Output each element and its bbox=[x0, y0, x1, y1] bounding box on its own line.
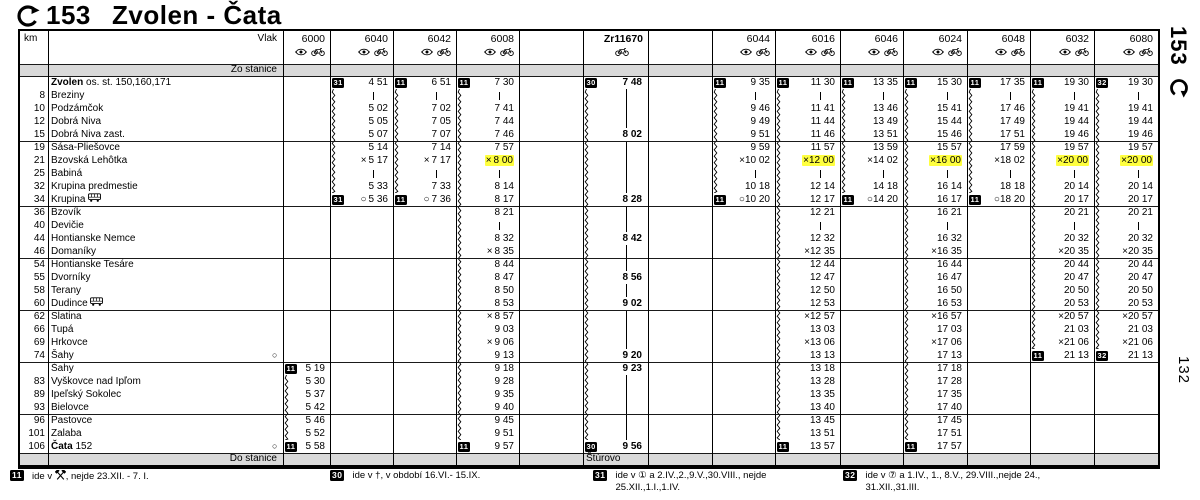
time-value: 7 14 bbox=[432, 141, 451, 154]
time-value: ×20 35 bbox=[1058, 245, 1089, 258]
do-stanice-label: Do stanice bbox=[20, 453, 277, 465]
time-cell: 17 40 bbox=[903, 401, 967, 414]
time-value: 20 32 bbox=[1128, 232, 1153, 245]
grid-line bbox=[48, 31, 49, 465]
highlighted-time: × 8 00 bbox=[485, 155, 514, 166]
time-cell: 11 44 bbox=[775, 115, 840, 128]
time-cell: 13 49 bbox=[840, 115, 903, 128]
grid-line bbox=[775, 31, 776, 465]
time-cell: 5 46 bbox=[283, 414, 330, 427]
time-value: 19 41 bbox=[1064, 102, 1089, 115]
nonstop-line bbox=[626, 323, 628, 336]
station-name: Krupina bbox=[51, 193, 101, 206]
time-cell: ×16 57 bbox=[903, 310, 967, 323]
km-value: 32 bbox=[20, 180, 45, 193]
note-badge: 32 bbox=[843, 470, 857, 481]
time-cell: 11○14 20 bbox=[840, 193, 903, 206]
time-value: 8 56 bbox=[623, 271, 642, 284]
time-value: 21 03 bbox=[1064, 323, 1089, 336]
eye-icon bbox=[1123, 48, 1135, 59]
time-value: 20 50 bbox=[1128, 284, 1153, 297]
time-cell: 7 46 bbox=[456, 128, 519, 141]
time-value: 6 51 bbox=[432, 76, 451, 89]
time-value: ×10 02 bbox=[739, 154, 770, 167]
note-badge: 30 bbox=[585, 78, 597, 88]
time-value: × 9 06 bbox=[487, 336, 514, 349]
time-cell: 17 45 bbox=[903, 414, 967, 427]
time-value: × 8 57 bbox=[487, 310, 514, 323]
pass-line bbox=[947, 92, 948, 100]
time-value: 7 02 bbox=[432, 102, 451, 115]
time-cell: 8 44 bbox=[456, 258, 519, 271]
station-name: Podzámčok bbox=[51, 102, 103, 115]
time-value: 14 18 bbox=[873, 180, 898, 193]
train-icons bbox=[840, 47, 898, 59]
station-name: Krupina predmestie bbox=[51, 180, 138, 193]
note-badge: 11 bbox=[458, 78, 470, 88]
train-number: 6046 bbox=[840, 33, 898, 45]
time-cell: 13 28 bbox=[775, 375, 840, 388]
time-cell: 12 14 bbox=[775, 180, 840, 193]
time-value: 16 44 bbox=[937, 258, 962, 271]
km-value: 8 bbox=[20, 89, 45, 102]
time-value: ×12 57 bbox=[804, 310, 835, 323]
section-line bbox=[20, 258, 1158, 259]
note-badge: 11 bbox=[458, 442, 470, 452]
timetable-table: kmVlakZo staniceDo staniceZvolen os. st.… bbox=[18, 29, 1160, 469]
nonstop-line bbox=[626, 401, 628, 414]
time-cell: 1121 13 bbox=[1030, 349, 1094, 362]
time-cell: 20 32 bbox=[1094, 232, 1158, 245]
time-value: 13 35 bbox=[873, 76, 898, 89]
time-cell: 8 47 bbox=[456, 271, 519, 284]
highlighted-time: ×16 00 bbox=[929, 155, 962, 166]
time-cell bbox=[903, 89, 967, 102]
km-value: 21 bbox=[20, 154, 45, 167]
time-cell bbox=[712, 89, 775, 102]
time-cell bbox=[1094, 167, 1158, 180]
time-value: 12 32 bbox=[810, 232, 835, 245]
time-cell bbox=[583, 258, 648, 271]
time-cell: 13 51 bbox=[840, 128, 903, 141]
highlighted-time: ×20 00 bbox=[1120, 155, 1153, 166]
note-badge: 11 bbox=[285, 364, 297, 374]
time-cell: 9 23 bbox=[583, 362, 648, 375]
station-row: 83Vyškovce nad Ipľom bbox=[20, 375, 283, 388]
time-value: 5 46 bbox=[306, 414, 325, 427]
section-line bbox=[20, 206, 1158, 207]
margin-route-number: 153 bbox=[1165, 26, 1191, 66]
time-cell: 8 42 bbox=[583, 232, 648, 245]
time-value: 17 13 bbox=[937, 349, 962, 362]
time-value: 12 44 bbox=[810, 258, 835, 271]
route-number: 153 bbox=[46, 0, 91, 31]
time-cell: 31○ 5 36 bbox=[330, 193, 393, 206]
time-cell: 19 46 bbox=[1030, 128, 1094, 141]
time-value: 5 05 bbox=[369, 115, 388, 128]
time-value: ×17 06 bbox=[931, 336, 962, 349]
train-number: 6080 bbox=[1094, 33, 1153, 45]
time-cell bbox=[583, 375, 648, 388]
pass-line bbox=[436, 92, 437, 100]
time-value: 5 14 bbox=[369, 141, 388, 154]
time-cell bbox=[583, 310, 648, 323]
time-cell: ×18 02 bbox=[967, 154, 1030, 167]
time-cell: ×17 06 bbox=[903, 336, 967, 349]
station-name: Breziny bbox=[51, 89, 84, 102]
time-cell bbox=[903, 219, 967, 232]
time-cell bbox=[583, 115, 648, 128]
train-icons bbox=[1030, 47, 1089, 59]
time-cell: 9 51 bbox=[456, 427, 519, 440]
time-cell bbox=[775, 89, 840, 102]
time-value: 20 47 bbox=[1128, 271, 1153, 284]
section-line bbox=[20, 414, 1158, 415]
time-value: 17 35 bbox=[937, 388, 962, 401]
time-cell: 307 48 bbox=[583, 76, 648, 89]
time-value: 5 02 bbox=[369, 102, 388, 115]
grid-line bbox=[456, 31, 457, 465]
time-value: 18 18 bbox=[1000, 180, 1025, 193]
bike-icon bbox=[884, 47, 898, 59]
time-value: 5 37 bbox=[306, 388, 325, 401]
time-cell: 19 41 bbox=[1030, 102, 1094, 115]
grid-line bbox=[283, 31, 284, 465]
station-name: Bielovce bbox=[51, 401, 89, 414]
note-badge: 30 bbox=[585, 442, 597, 452]
time-cell: ×13 06 bbox=[775, 336, 840, 349]
nonstop-line bbox=[626, 310, 628, 323]
time-cell: ×12 57 bbox=[775, 310, 840, 323]
footnote-30: 30ide v †, v období 16.VI.- 15.IX. bbox=[330, 470, 480, 482]
time-cell bbox=[1094, 89, 1158, 102]
station-row: 89Ipeľský Sokolec bbox=[20, 388, 283, 401]
km-value: 58 bbox=[20, 284, 45, 297]
time-cell: ×10 02 bbox=[712, 154, 775, 167]
station-row: 44Hontianske Nemce bbox=[20, 232, 283, 245]
time-cell: 12 53 bbox=[775, 297, 840, 310]
km-value: 101 bbox=[20, 427, 45, 440]
time-cell: 5 02 bbox=[330, 102, 393, 115]
time-value: 13 13 bbox=[810, 349, 835, 362]
station-name: Pastovce bbox=[51, 414, 92, 427]
time-cell: 15 44 bbox=[903, 115, 967, 128]
time-cell: 14 18 bbox=[840, 180, 903, 193]
time-value: 20 17 bbox=[1128, 193, 1153, 206]
time-cell: 20 21 bbox=[1094, 206, 1158, 219]
time-cell: × 8 00 bbox=[456, 154, 519, 167]
time-cell: 119 35 bbox=[712, 76, 775, 89]
pass-line bbox=[1074, 170, 1075, 178]
time-cell: 17 49 bbox=[967, 115, 1030, 128]
train-icons bbox=[283, 47, 325, 59]
bike-icon bbox=[311, 47, 325, 59]
time-value: 13 45 bbox=[810, 414, 835, 427]
pass-line bbox=[436, 170, 437, 178]
time-cell: 8 02 bbox=[583, 128, 648, 141]
time-cell: 16 53 bbox=[903, 297, 967, 310]
grid-line bbox=[967, 31, 968, 465]
bike-icon bbox=[756, 47, 770, 59]
time-value: 17 45 bbox=[937, 414, 962, 427]
time-cell bbox=[1030, 89, 1094, 102]
bus-icon bbox=[88, 298, 104, 309]
note-badge: 31 bbox=[332, 195, 344, 205]
time-cell: 7 02 bbox=[393, 102, 456, 115]
station-row: 8Breziny bbox=[20, 89, 283, 102]
footnote-text: ide v ① a 2.IV.,2.,9.V.,30.VIII., nejde2… bbox=[615, 470, 766, 493]
time-cell: 17 51 bbox=[967, 128, 1030, 141]
time-value: 17 57 bbox=[937, 440, 962, 453]
time-cell bbox=[456, 167, 519, 180]
grid-line bbox=[393, 31, 394, 465]
time-cell: 10 18 bbox=[712, 180, 775, 193]
time-cell: 9 35 bbox=[456, 388, 519, 401]
time-value: 5 58 bbox=[306, 440, 325, 453]
train-icons bbox=[330, 47, 388, 59]
time-value: ×18 02 bbox=[994, 154, 1025, 167]
time-value: 9 20 bbox=[623, 349, 642, 362]
time-cell: ×16 35 bbox=[903, 245, 967, 258]
nonstop-line bbox=[626, 219, 628, 232]
time-value: 10 18 bbox=[745, 180, 770, 193]
note-badge: 11 bbox=[905, 78, 917, 88]
time-cell: 7 57 bbox=[456, 141, 519, 154]
station-name: Šahy bbox=[51, 349, 74, 362]
grid-line bbox=[648, 31, 649, 465]
time-value: 13 35 bbox=[810, 388, 835, 401]
time-value: 19 46 bbox=[1064, 128, 1089, 141]
stop-circle-icon: ○ bbox=[272, 349, 277, 362]
time-value: 9 51 bbox=[495, 427, 514, 440]
pass-line bbox=[1010, 170, 1011, 178]
station-name: Hontianske Tesáre bbox=[51, 258, 134, 271]
note-badge: 11 bbox=[842, 78, 854, 88]
time-cell bbox=[393, 167, 456, 180]
time-value: 13 59 bbox=[873, 141, 898, 154]
note-badge: 32 bbox=[1096, 78, 1108, 88]
bus-icon bbox=[85, 194, 101, 205]
time-cell: 8 50 bbox=[456, 284, 519, 297]
bike-icon bbox=[615, 47, 629, 59]
time-value: 9 56 bbox=[623, 440, 642, 453]
station-name: Ipeľský Sokolec bbox=[51, 388, 121, 401]
time-cell: 5 30 bbox=[283, 375, 330, 388]
time-cell: 15 46 bbox=[903, 128, 967, 141]
station-row: 55Dvorníky bbox=[20, 271, 283, 284]
time-cell: × 5 17 bbox=[330, 154, 393, 167]
station-name: Sása-Pliešovce bbox=[51, 141, 120, 154]
route-title: Zvolen - Čata bbox=[112, 0, 282, 31]
time-value: 17 49 bbox=[1000, 115, 1025, 128]
time-cell: 13 45 bbox=[775, 414, 840, 427]
time-value: ×21 06 bbox=[1058, 336, 1089, 349]
time-cell: 5 14 bbox=[330, 141, 393, 154]
time-cell: 7 44 bbox=[456, 115, 519, 128]
station-row: 10Podzámčok bbox=[20, 102, 283, 115]
time-cell bbox=[583, 102, 648, 115]
train-number: 6016 bbox=[775, 33, 835, 45]
pass-line bbox=[499, 92, 500, 100]
time-value: 20 21 bbox=[1064, 206, 1089, 219]
note-badge: 11 bbox=[777, 442, 789, 452]
time-cell: 11 46 bbox=[775, 128, 840, 141]
zo-stanice-label: Zo stanice bbox=[20, 64, 277, 76]
station-row: 36Bzovík bbox=[20, 206, 283, 219]
time-value: 9 46 bbox=[751, 102, 770, 115]
time-cell: 5 07 bbox=[330, 128, 393, 141]
time-cell: 19 41 bbox=[1094, 102, 1158, 115]
nonstop-line bbox=[626, 141, 628, 154]
time-value: 17 59 bbox=[1000, 141, 1025, 154]
time-cell: 17 46 bbox=[967, 102, 1030, 115]
station-name: Dobrá Niva zast. bbox=[51, 128, 125, 141]
time-cell: 5 05 bbox=[330, 115, 393, 128]
station-name: Tupá bbox=[51, 323, 73, 336]
time-value: 16 53 bbox=[937, 297, 962, 310]
time-cell: 8 14 bbox=[456, 180, 519, 193]
time-cell bbox=[1094, 219, 1158, 232]
time-value: 9 40 bbox=[495, 401, 514, 414]
nonstop-line bbox=[626, 336, 628, 349]
time-cell: 8 53 bbox=[456, 297, 519, 310]
time-value: 15 46 bbox=[937, 128, 962, 141]
time-value: 13 40 bbox=[810, 401, 835, 414]
pass-line bbox=[499, 222, 500, 230]
time-value: 16 50 bbox=[937, 284, 962, 297]
nonstop-line bbox=[626, 245, 628, 258]
time-value: 5 52 bbox=[306, 427, 325, 440]
grid-line bbox=[1094, 31, 1095, 465]
time-cell: 21 03 bbox=[1030, 323, 1094, 336]
time-cell: 13 40 bbox=[775, 401, 840, 414]
note-badge: 11 bbox=[1032, 351, 1044, 361]
section-line bbox=[20, 141, 1158, 142]
time-value: 20 14 bbox=[1128, 180, 1153, 193]
train-number: 6048 bbox=[967, 33, 1025, 45]
pass-line bbox=[883, 92, 884, 100]
train-icons bbox=[775, 47, 835, 59]
time-value: 19 46 bbox=[1128, 128, 1153, 141]
time-cell: 9 49 bbox=[712, 115, 775, 128]
km-value: 10 bbox=[20, 102, 45, 115]
km-value: 69 bbox=[20, 336, 45, 349]
time-value: 9 13 bbox=[495, 349, 514, 362]
time-cell: 11○ 7 36 bbox=[393, 193, 456, 206]
time-cell: 11○18 20 bbox=[967, 193, 1030, 206]
footnote-32: 32ide v ⑦ a 1.IV., 1., 8.V., 29.VIII.,ne… bbox=[843, 470, 1040, 493]
time-cell bbox=[330, 167, 393, 180]
time-cell bbox=[583, 401, 648, 414]
time-cell: 9 20 bbox=[583, 349, 648, 362]
time-cell: 20 53 bbox=[1030, 297, 1094, 310]
time-value: ×16 00 bbox=[929, 154, 962, 167]
time-cell bbox=[583, 284, 648, 297]
time-cell bbox=[583, 336, 648, 349]
time-cell: ×16 00 bbox=[903, 154, 967, 167]
time-cell: 309 56 bbox=[583, 440, 648, 453]
destination-label: Štúrovo bbox=[586, 453, 620, 465]
station-row: 40Devičie bbox=[20, 219, 283, 232]
timetable-page: 153 Zvolen - Čata kmVlakZo staniceDo sta… bbox=[0, 0, 1200, 500]
time-value: ○18 20 bbox=[994, 193, 1025, 206]
time-value: 17 03 bbox=[937, 323, 962, 336]
time-value: 19 30 bbox=[1064, 76, 1089, 89]
nonstop-line bbox=[626, 115, 628, 128]
time-cell: 7 14 bbox=[393, 141, 456, 154]
pass-line bbox=[820, 222, 821, 230]
time-cell: 13 59 bbox=[840, 141, 903, 154]
time-cell: 20 44 bbox=[1030, 258, 1094, 271]
time-cell bbox=[583, 427, 648, 440]
time-cell: 19 44 bbox=[1030, 115, 1094, 128]
grid-line bbox=[903, 31, 904, 465]
pass-line bbox=[947, 222, 948, 230]
time-cell: 1119 30 bbox=[1030, 76, 1094, 89]
note-badge: 11 bbox=[714, 78, 726, 88]
time-value: 9 35 bbox=[751, 76, 770, 89]
train-icons bbox=[712, 47, 770, 59]
km-value: 66 bbox=[20, 323, 45, 336]
time-cell: 9 13 bbox=[456, 349, 519, 362]
time-value: 20 53 bbox=[1128, 297, 1153, 310]
time-cell: 20 21 bbox=[1030, 206, 1094, 219]
pass-line bbox=[883, 170, 884, 178]
time-value: ×13 06 bbox=[804, 336, 835, 349]
time-value: 17 28 bbox=[937, 375, 962, 388]
eye-icon bbox=[868, 48, 880, 59]
time-value: ×20 57 bbox=[1122, 310, 1153, 323]
time-cell: 115 19 bbox=[283, 362, 330, 375]
time-cell: 13 03 bbox=[775, 323, 840, 336]
time-value: 7 05 bbox=[432, 115, 451, 128]
footnote-31: 31ide v ① a 2.IV.,2.,9.V.,30.VIII., nejd… bbox=[593, 470, 766, 493]
time-cell: 9 51 bbox=[712, 128, 775, 141]
time-cell bbox=[583, 154, 648, 167]
time-cell: 1117 35 bbox=[967, 76, 1030, 89]
time-cell: 20 44 bbox=[1094, 258, 1158, 271]
time-cell bbox=[393, 89, 456, 102]
time-cell: 12 21 bbox=[775, 206, 840, 219]
km-value: 34 bbox=[20, 193, 45, 206]
pass-line bbox=[373, 170, 374, 178]
time-value: 17 40 bbox=[937, 401, 962, 414]
time-value: 20 32 bbox=[1064, 232, 1089, 245]
time-cell: × 8 57 bbox=[456, 310, 519, 323]
time-cell: ×20 00 bbox=[1030, 154, 1094, 167]
time-cell: 12 44 bbox=[775, 258, 840, 271]
station-row: 93Bielovce bbox=[20, 401, 283, 414]
time-value: 8 14 bbox=[495, 180, 514, 193]
km-value: 46 bbox=[20, 245, 45, 258]
time-cell: 15 57 bbox=[903, 141, 967, 154]
train-icons bbox=[456, 47, 514, 59]
time-value: 13 46 bbox=[873, 102, 898, 115]
note-badge: 11 bbox=[395, 78, 407, 88]
time-cell bbox=[903, 167, 967, 180]
footnote-11: 11ide v , nejde 23.XII. - 7. I. bbox=[10, 470, 149, 483]
station-name: Šahy bbox=[51, 362, 74, 375]
train-icons bbox=[393, 47, 451, 59]
time-cell: 20 47 bbox=[1094, 271, 1158, 284]
station-name: Čata 152 bbox=[51, 440, 92, 453]
station-name: Bzovská Lehôtka bbox=[51, 154, 127, 167]
time-value: 19 44 bbox=[1128, 115, 1153, 128]
station-name: Domaníky bbox=[51, 245, 96, 258]
time-value: 8 21 bbox=[495, 206, 514, 219]
time-value: 15 30 bbox=[937, 76, 962, 89]
time-value: 19 57 bbox=[1064, 141, 1089, 154]
